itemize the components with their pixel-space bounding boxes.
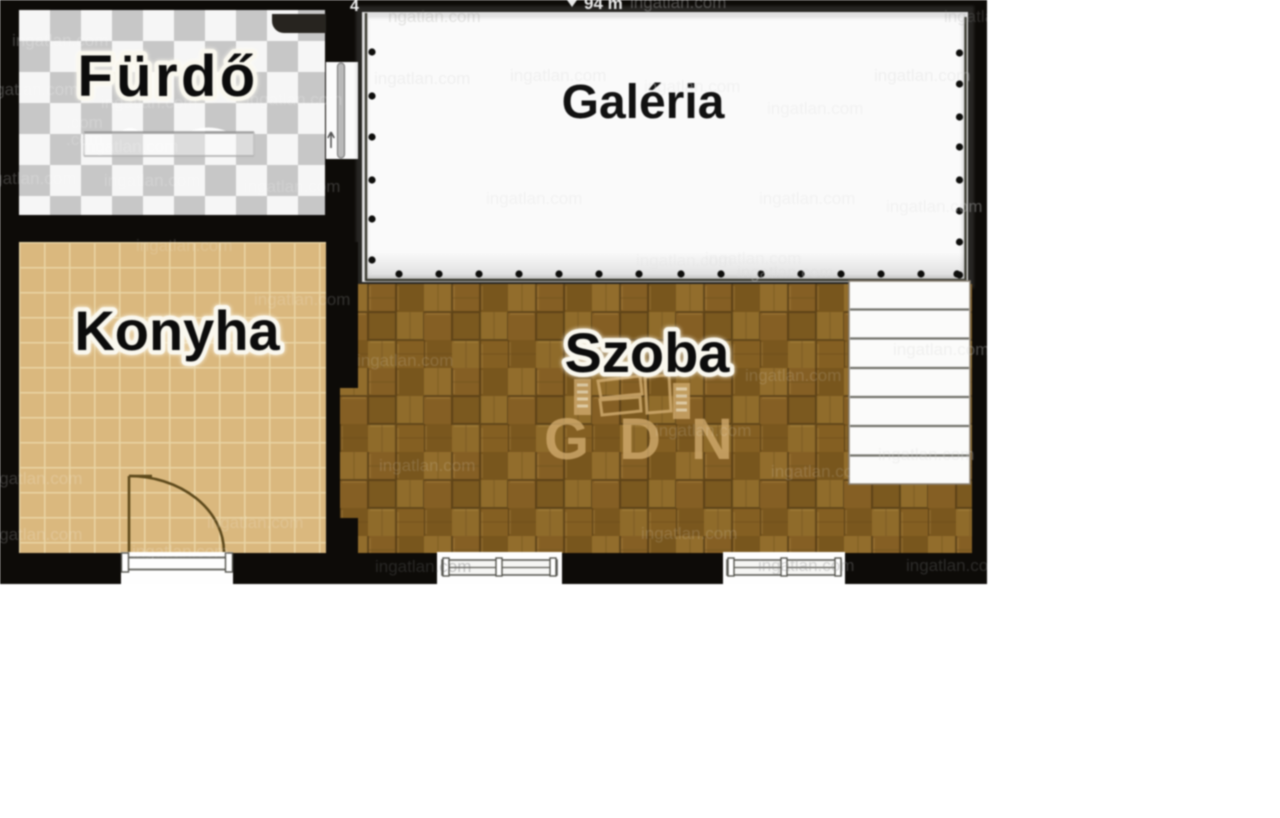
svg-text:ingatlan.com: ingatlan.com xyxy=(375,557,471,576)
svg-text:ingatlan.com: ingatlan.com xyxy=(357,351,453,370)
svg-text:ingatlan.com: ingatlan.com xyxy=(254,290,350,309)
svg-text:Konyha: Konyha xyxy=(74,299,280,362)
svg-text:ingatlan.com: ingatlan.com xyxy=(0,525,82,544)
svg-text:ingatlan.com: ingatlan.com xyxy=(379,456,475,475)
svg-text:ingatlan.com: ingatlan.com xyxy=(906,556,987,575)
svg-text:ingatlan.com: ingatlan.com xyxy=(486,189,582,208)
svg-text:.com: .com xyxy=(66,130,103,149)
svg-text:ingatlan.com: ingatlan.com xyxy=(630,0,726,12)
svg-text:ingatlan.com: ingatlan.com xyxy=(510,66,606,85)
svg-text:ingatlan.com: ingatlan.com xyxy=(893,340,987,359)
svg-text:ngatlan.com: ngatlan.com xyxy=(388,7,481,26)
svg-text:ingatlan.com: ingatlan.com xyxy=(104,171,200,190)
svg-text:ingatlan.com: ingatlan.com xyxy=(0,169,76,188)
svg-text:ingatlan.com: ingatlan.com xyxy=(132,542,228,561)
svg-text:94 m: 94 m xyxy=(584,0,623,13)
svg-text:4: 4 xyxy=(350,0,359,15)
svg-text:ingatlan.com: ingatlan.com xyxy=(0,469,82,488)
svg-text:ingatlan.com: ingatlan.com xyxy=(767,99,863,118)
svg-text:ingatlan.com: ingatlan.com xyxy=(758,556,854,575)
svg-text:ingatlan.com: ingatlan.com xyxy=(771,462,867,481)
svg-text:ingatlan.com: ingatlan.com xyxy=(705,249,801,268)
svg-text:ingatlan.com: ingatlan.com xyxy=(136,236,232,255)
svg-text:ingatlan.com: ingatlan.com xyxy=(641,524,737,543)
svg-text:ingatlan.com: ingatlan.com xyxy=(886,197,982,216)
svg-text:ingatlan.com: ingatlan.com xyxy=(0,80,78,99)
svg-text:ingatlan.com: ingatlan.com xyxy=(655,421,751,440)
svg-text:ingatlan.com: ingatlan.com xyxy=(244,177,340,196)
svg-text:ingatlan.com: ingatlan.com xyxy=(759,189,855,208)
svg-text:ingatlan.com: ingatlan.com xyxy=(874,66,970,85)
svg-text:ingatlan.com: ingatlan.com xyxy=(878,445,974,464)
svg-text:ingatlan.com: ingatlan.com xyxy=(246,90,342,109)
svg-text:ingatlan.com: ingatlan.com xyxy=(101,93,197,112)
svg-text:Szoba: Szoba xyxy=(565,321,731,384)
svg-text:ingatlan.com: ingatlan.com xyxy=(374,69,470,88)
svg-text:ingatlan.com: ingatlan.com xyxy=(207,513,303,532)
svg-text:ingatlan.com: ingatlan.com xyxy=(944,7,987,26)
svg-text:ingatlan.com: ingatlan.com xyxy=(12,31,108,50)
svg-text:ingatlan.com: ingatlan.com xyxy=(644,77,740,96)
svg-text:ingatlan.com: ingatlan.com xyxy=(745,366,841,385)
